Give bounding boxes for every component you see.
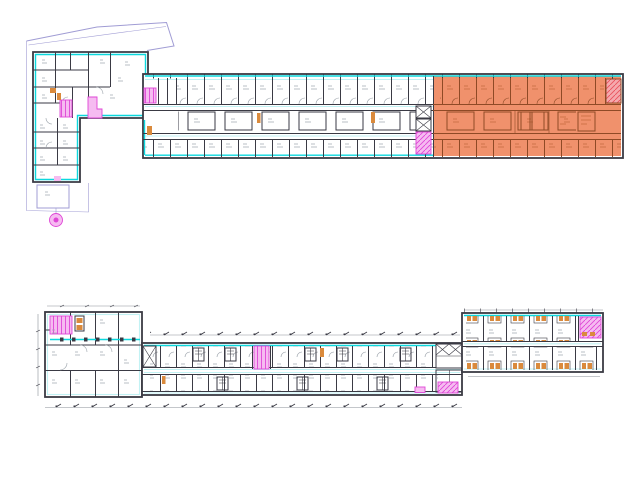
lower-floor-plan [36,305,603,410]
room-row-bottom [150,375,438,391]
room-row-bottom [145,140,433,157]
magenta-mark [415,387,425,393]
room-row-top [466,316,578,341]
cad-drawing [0,0,640,479]
elevator-core [416,106,431,131]
fixture-mark [590,332,595,336]
room-row-bottom-highlighted [434,140,621,157]
fixture-mark [582,332,587,336]
stair-block-right [436,344,462,393]
fixture-mark [257,113,261,123]
magenta-stair-core [144,88,156,103]
magenta-stair-core [416,132,431,154]
fixture-mark [320,348,324,357]
magenta-mark [54,176,61,181]
floor-plan-canvas [0,0,640,479]
magenta-entry-dot [54,218,59,223]
upper-floor-plan [27,23,624,227]
long-central-wing [142,343,462,395]
left-block [45,312,142,397]
magenta-stair-core [50,316,72,334]
left-l-wing [33,52,148,195]
fixture-mark [371,112,375,123]
window-mullion-ticks [464,309,603,313]
room-row-bottom [466,347,596,370]
magenta-elevator-core [253,346,271,369]
room-row-top [176,78,433,104]
northeast-wing [462,309,603,373]
core-band-highlighted [444,111,576,133]
magenta-stair-core [60,100,72,117]
room-row-top-highlighted [440,78,604,104]
fixture-mark [57,93,61,100]
fixture-mark [50,88,56,93]
boundary-line [27,23,175,51]
fixture-mark [77,325,83,330]
red-hatched-stair [606,79,621,103]
fixture-mark [147,126,152,135]
curtain-wall-mullions [52,338,138,342]
core-room-band [178,111,416,133]
courtyard-outline [37,185,69,208]
fixture-mark [162,376,166,384]
long-east-wing [143,74,623,159]
fixture-mark [77,318,83,323]
